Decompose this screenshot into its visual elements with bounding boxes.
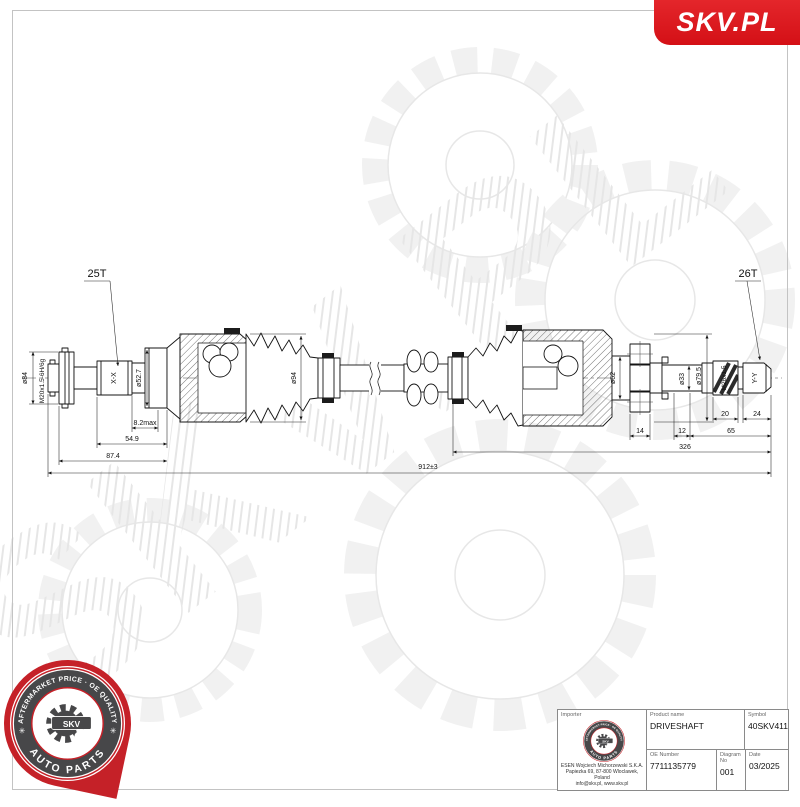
- diagram-no-label: Diagram No: [717, 750, 745, 764]
- boot-clamp: [322, 353, 334, 358]
- badge-center-text: SKV: [602, 739, 609, 743]
- spline-teeth-right-label: 26T: [739, 268, 758, 280]
- date-cell: Date 03/2025: [746, 750, 788, 790]
- oe-number-value: 7711135779: [647, 758, 716, 771]
- dim-20-label: 20: [721, 411, 729, 418]
- left-cv-joint: [180, 328, 248, 422]
- product-name-value: DRIVESHAFT: [647, 718, 744, 731]
- dia-79-5-label: ø79.5: [696, 367, 703, 385]
- symbol-cell: Symbol 40SKV411: [745, 710, 788, 749]
- dim-65-label: 65: [727, 428, 735, 435]
- thread-right-label: M26x1.5: [721, 365, 728, 390]
- right-boot: [448, 330, 523, 426]
- shaft-middle: [340, 362, 404, 395]
- boot-clamp: [452, 399, 464, 404]
- spline-teeth-left-label: 25T: [88, 268, 107, 280]
- boot-clamp: [322, 398, 334, 403]
- skv-badge-small: AFTERMARKET PRICE · OE QUALITY AUTO PART…: [582, 719, 626, 763]
- brand-logo-text: SKV.PL: [676, 7, 777, 38]
- oe-number-label: OE Number: [647, 750, 716, 758]
- dia-52-7-label: ø52.7: [136, 369, 143, 387]
- thread-left-label: M20x1.5-6H/6g: [39, 358, 46, 403]
- boot-clamp: [452, 352, 464, 357]
- shaft-right-end: [612, 341, 771, 415]
- dim-24-label: 24: [753, 411, 761, 418]
- diagram-no-cell: Diagram No 001: [717, 750, 746, 790]
- damper: [404, 350, 448, 406]
- boot-clamp: [506, 325, 522, 331]
- boot-clamp: [224, 328, 240, 334]
- dim-326-label: 326: [679, 444, 691, 451]
- star-icon: ✳: [110, 726, 117, 735]
- dia-94-label: ø94: [291, 372, 298, 384]
- importer-contact: info@skv.pl, www.skv.pl: [559, 781, 645, 787]
- symbol-value: 40SKV411: [745, 718, 788, 731]
- dim-14-label: 14: [636, 428, 644, 435]
- date-label: Date: [746, 750, 788, 758]
- importer-address: Papiezka 69, 87-800 Wloclawek, Poland: [559, 769, 645, 781]
- section-yy-label: Y-Y: [752, 372, 759, 383]
- dia-84-label: ø84: [22, 372, 29, 384]
- title-block: Importer AFTERMARKET PRICE · OE QUALITY …: [557, 709, 789, 791]
- importer-label: Importer: [561, 712, 581, 718]
- dim-8-2-label: 8.2max: [134, 420, 157, 427]
- title-block-right: Product name DRIVESHAFT Symbol 40SKV411 …: [647, 710, 788, 790]
- star-icon: ✳: [19, 726, 26, 735]
- skv-badge: AFTERMARKET PRICE · OE QUALITY AUTO PART…: [8, 664, 127, 783]
- badge-center-text: SKV: [63, 719, 81, 729]
- dim-87-4-label: 87.4: [106, 453, 120, 460]
- oe-number-cell: OE Number 7711135779: [647, 750, 717, 790]
- dia-33-label: ø33: [679, 373, 686, 385]
- importer-cell: Importer AFTERMARKET PRICE · OE QUALITY …: [558, 710, 647, 790]
- dim-54-9-label: 54.9: [125, 436, 139, 443]
- symbol-label: Symbol: [745, 710, 788, 718]
- date-value: 03/2025: [746, 758, 788, 771]
- dim-12-label: 12: [678, 428, 686, 435]
- brand-logo-box: SKV.PL: [654, 0, 800, 45]
- skv-pin-logo: AFTERMARKET PRICE · OE QUALITY AUTO PART…: [0, 648, 143, 799]
- diagram-no-value: 001: [717, 764, 745, 777]
- section-xx-label: X-X: [111, 372, 118, 384]
- dim-overall-label: 912±3: [418, 464, 438, 471]
- product-name-cell: Product name DRIVESHAFT: [647, 710, 745, 749]
- product-name-label: Product name: [647, 710, 744, 718]
- dia-62-label: ø62: [610, 372, 617, 384]
